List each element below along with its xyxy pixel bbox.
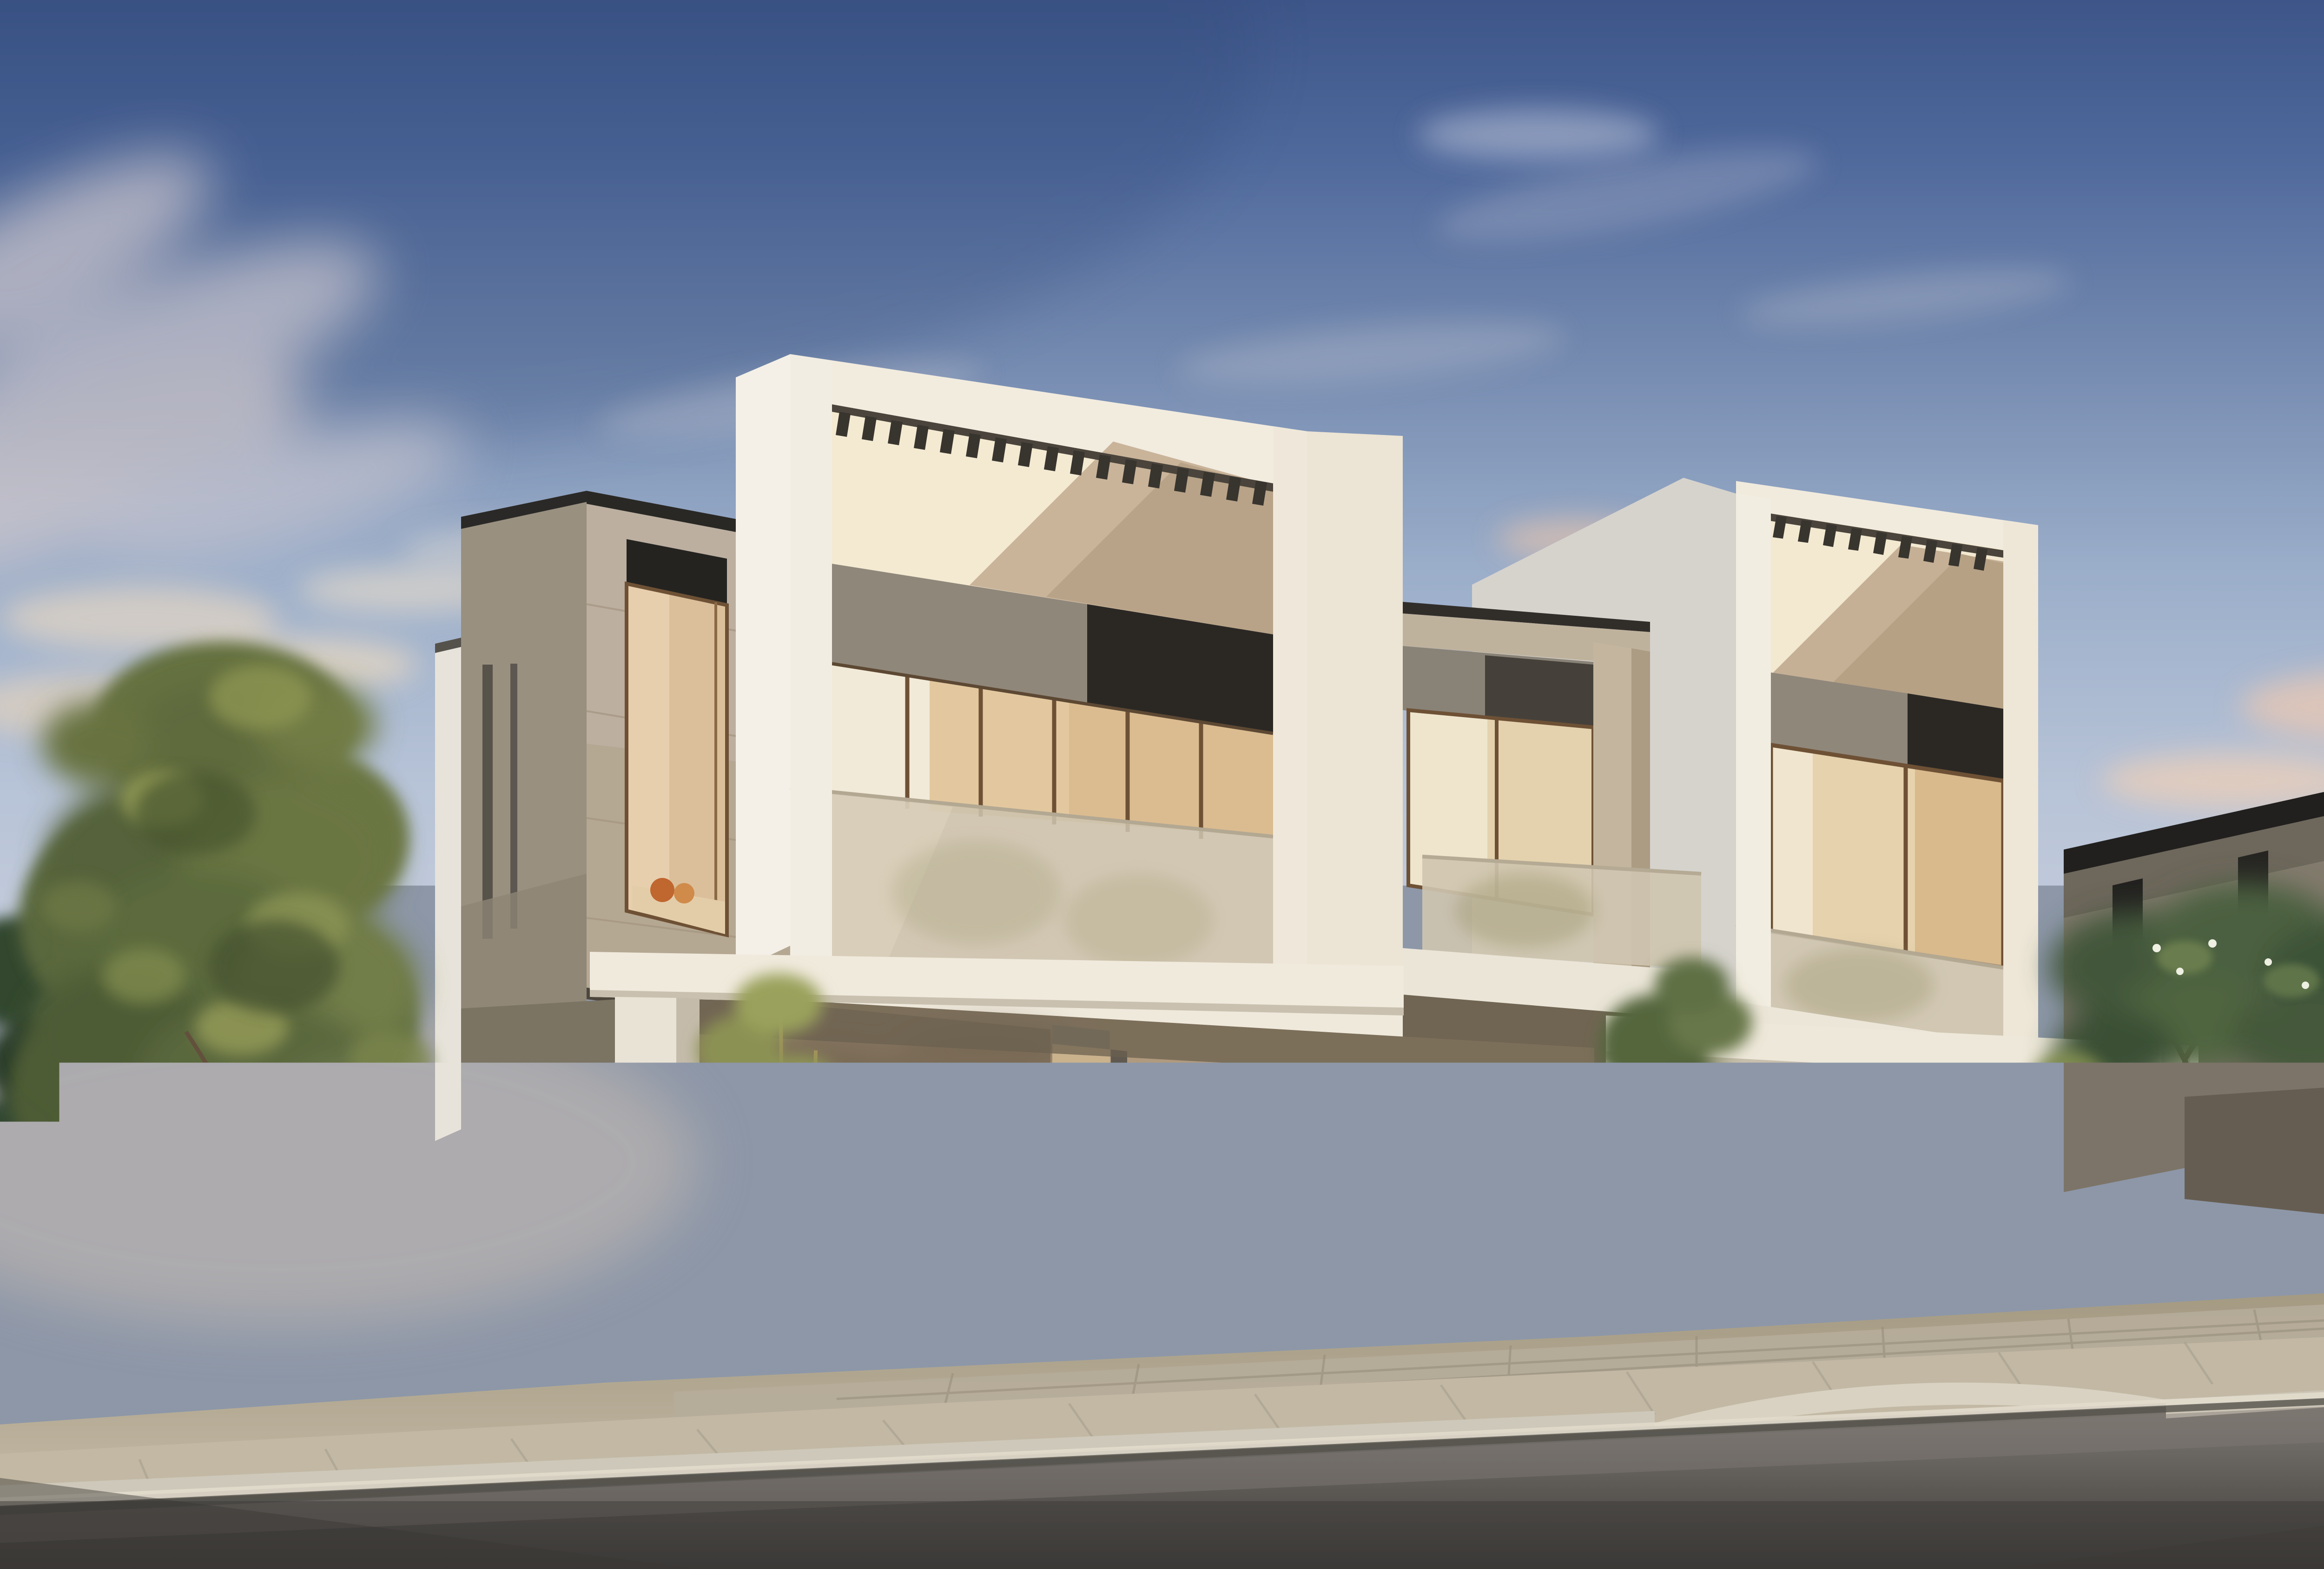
svg-text:DUBAI: DUBAI (1395, 1342, 1415, 1349)
svg-text:20226: 20226 (1417, 1330, 1468, 1350)
svg-text:دبي: دبي (1396, 1329, 1411, 1339)
svg-text:09: 09 (411, 1215, 446, 1246)
svg-text:K: K (1376, 1331, 1388, 1350)
